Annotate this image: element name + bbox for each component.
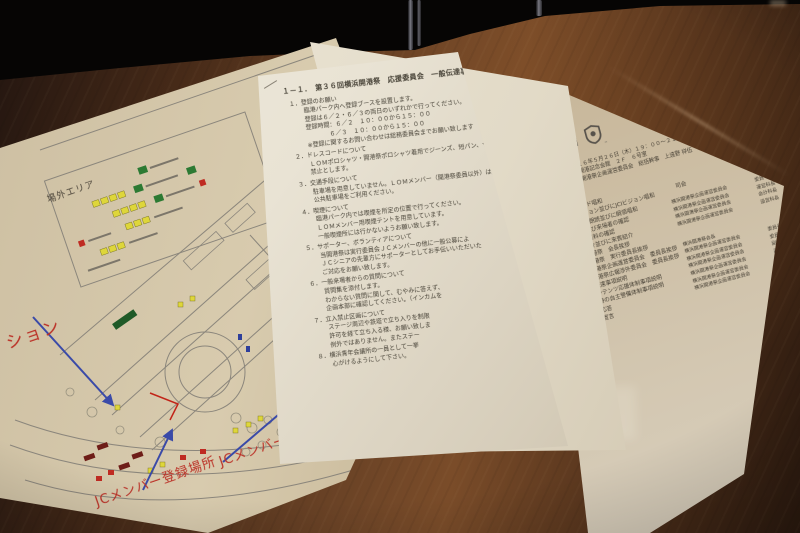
highlight-blob: [770, 0, 786, 6]
jci-shield-icon: [582, 123, 604, 150]
photo-scene: 場外エリア ション JCメンバー登録場所 JCメンバー JCI ™: [0, 0, 800, 533]
chair-leg: [408, 0, 413, 50]
trademark-symbol: ™: [604, 140, 609, 146]
chair-leg: [417, 0, 421, 46]
chair-leg: [536, 0, 542, 16]
